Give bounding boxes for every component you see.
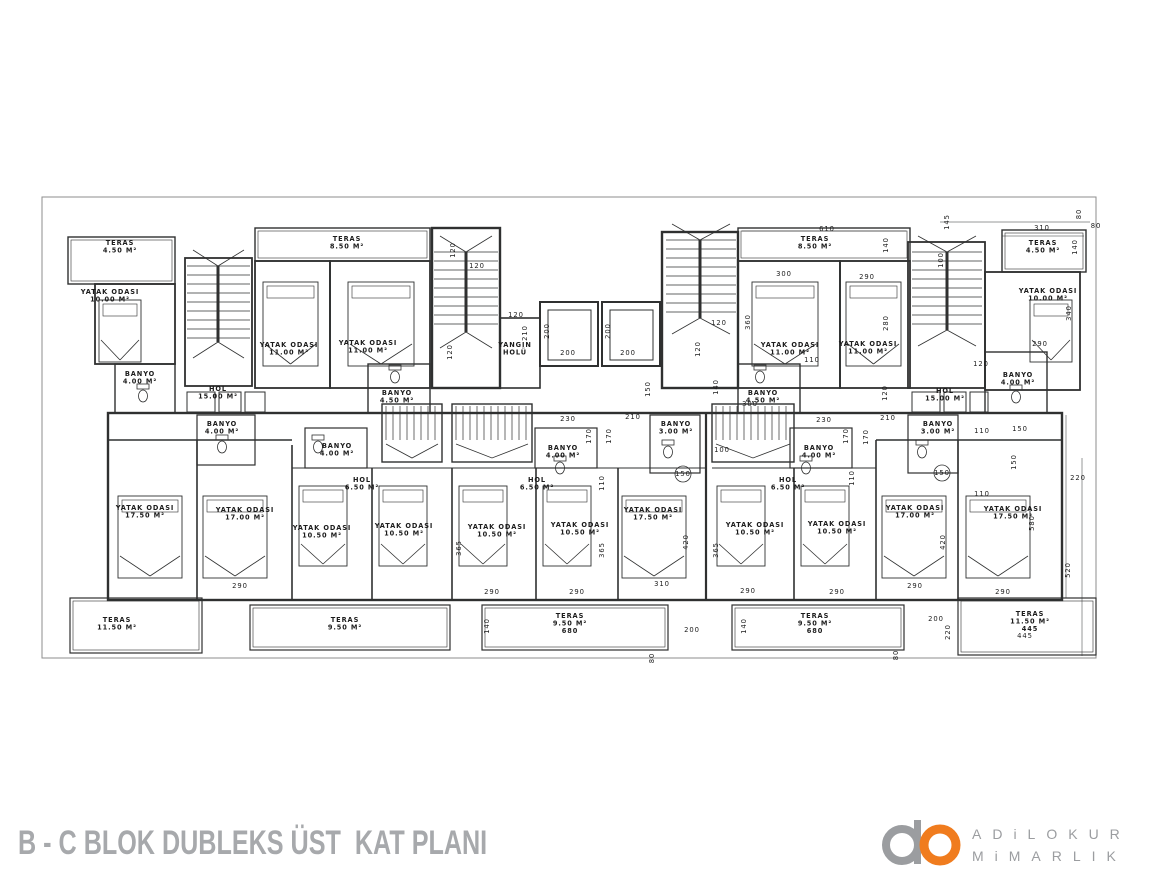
dimension-label: 110 — [974, 427, 990, 435]
room-label: BANYO3.00 M² — [921, 420, 955, 436]
room-label: BANYO3.00 M² — [659, 420, 693, 436]
dimension-label: 610 — [819, 225, 835, 233]
dimension-label: 110 — [848, 470, 856, 486]
dimension-label: 290 — [859, 273, 875, 281]
dimension-label: 360 — [744, 314, 752, 330]
dimension-label: 170 — [842, 428, 850, 444]
drawing-title: B - C BLOK DUBLEKS ÜST KAT PLANI — [18, 824, 487, 863]
dimension-label: 290 — [740, 587, 756, 595]
dimension-label: 120 — [694, 341, 702, 357]
dimension-label: 80 — [648, 653, 656, 663]
dimension-label: 210 — [880, 414, 896, 422]
dimension-label: 310 — [654, 580, 670, 588]
dimension-label: 120 — [446, 344, 454, 360]
room-labels: TERAS4.50 M²YATAK ODASI10.00 M²BANYO4.00… — [80, 235, 1078, 635]
dimension-label: 290 — [995, 588, 1011, 596]
dimension-label: 310 — [1034, 224, 1050, 232]
dimension-label: 170 — [862, 429, 870, 445]
dimension-label: 110 — [598, 475, 606, 491]
room-label: TERAS4.50 M² — [1026, 239, 1060, 255]
dimension-label: 120 — [508, 311, 524, 319]
dimension-label: 150 — [934, 469, 950, 477]
logo-a-icon — [886, 829, 918, 861]
logo-text-line1: ADiLOKUR — [972, 826, 1131, 842]
room-label: BANYO4.00 M² — [1001, 371, 1035, 387]
room-label: HOL15.00 M² — [198, 385, 238, 401]
room-label: YANGINHOLÜ — [497, 341, 532, 357]
dimension-label: 200 — [543, 323, 551, 339]
dimension-label: 230 — [816, 416, 832, 424]
dimension-label: 145 — [943, 214, 951, 230]
room-label: BANYO4.00 M² — [205, 420, 239, 436]
room-label: BANYO4.00 M² — [123, 370, 157, 386]
dimension-label: 120 — [973, 360, 989, 368]
dimension-label: 140 — [483, 618, 491, 634]
dimension-label: 200 — [928, 615, 944, 623]
dimension-label: 200 — [620, 349, 636, 357]
room-label: TERAS8.50 M² — [330, 235, 364, 251]
dimension-label: 110 — [974, 490, 990, 498]
dimension-label: 150 — [1012, 425, 1028, 433]
room-label: BANYO4.00 M² — [546, 444, 580, 460]
dimension-label: 445 — [1017, 632, 1033, 640]
room-label: YATAK ODASI11.00 M² — [259, 341, 319, 357]
dimension-label: 100 — [937, 252, 945, 268]
room-label: HOL6.50 M² — [771, 476, 805, 492]
room-label: YATAK ODASI10.50 M² — [467, 523, 527, 539]
room-label: HOL6.50 M² — [520, 476, 554, 492]
dimension-label: 100 — [714, 446, 730, 454]
dimension-labels: 6101401453108080140340290120100120120120… — [232, 209, 1101, 663]
room-label: YATAK ODASI17.50 M² — [115, 504, 175, 520]
dimension-label: 520 — [1064, 562, 1072, 578]
dimension-label: 280 — [882, 315, 890, 331]
room-label: BANYO4.50 M² — [380, 389, 414, 405]
dimension-label: 120 — [469, 262, 485, 270]
dimension-label: 140 — [740, 618, 748, 634]
room-label: TERAS9.50 M²680 — [553, 612, 587, 635]
dimension-label: 220 — [1070, 474, 1086, 482]
logo-text-line2: MiMARLIK — [972, 848, 1127, 864]
room-label: TERAS11.50 M²445 — [1010, 610, 1050, 633]
logo-o-icon — [924, 829, 956, 861]
room-label: HOL15.00 M² — [925, 387, 965, 403]
room-label: YATAK ODASI17.00 M² — [885, 504, 945, 520]
dimension-label: 220 — [944, 624, 952, 640]
dimension-label: 150 — [1010, 454, 1018, 470]
room-label: YATAK ODASI11.00 M² — [338, 339, 398, 355]
dimension-label: 80 — [1091, 222, 1101, 230]
floor-plan-drawing: 6101401453108080140340290120100120120120… — [0, 0, 1169, 877]
dimension-label: 290 — [232, 582, 248, 590]
dimension-label: 120 — [711, 319, 727, 327]
logo-mark — [872, 812, 972, 874]
room-label: TERAS11.50 M² — [97, 616, 137, 632]
dimension-label: 290 — [907, 582, 923, 590]
dimension-label: 150 — [675, 470, 691, 478]
room-label: TERAS4.50 M² — [103, 239, 137, 255]
dimension-label: 420 — [939, 534, 947, 550]
dimension-label: 420 — [682, 534, 690, 550]
dimension-label: 120 — [881, 385, 889, 401]
dimension-label: 170 — [605, 428, 613, 444]
dimension-label: 230 — [560, 415, 576, 423]
room-label: BANYO4.50 M² — [746, 389, 780, 405]
dimension-label: 365 — [712, 542, 720, 558]
dimension-label: 210 — [521, 325, 529, 341]
dimension-label: 290 — [484, 588, 500, 596]
dimension-label: 290 — [569, 588, 585, 596]
dimension-label: 80 — [892, 650, 900, 660]
dimension-label: 170 — [585, 428, 593, 444]
dimension-label: 80 — [1075, 209, 1083, 219]
dimension-label: 110 — [804, 356, 820, 364]
room-label: YATAK ODASI10.50 M² — [550, 521, 610, 537]
firm-logo: ADiLOKUR MiMARLIK — [872, 812, 1162, 874]
dimension-label: 140 — [1071, 239, 1079, 255]
dimension-label: 290 — [829, 588, 845, 596]
dimension-label: 210 — [625, 413, 641, 421]
room-label: HOL6.50 M² — [345, 476, 379, 492]
room-label: TERAS9.50 M²680 — [798, 612, 832, 635]
dimension-label: 200 — [604, 323, 612, 339]
room-label: BANYO4.00 M² — [802, 444, 836, 460]
room-label: TERAS9.50 M² — [328, 616, 362, 632]
room-label: TERAS8.50 M² — [798, 235, 832, 251]
room-label: YATAK ODASI10.00 M² — [80, 288, 140, 304]
dimension-label: 140 — [882, 237, 890, 253]
dimension-label: 340 — [1065, 305, 1073, 321]
dimension-label: 200 — [684, 626, 700, 634]
room-label: YATAK ODASI11.00 M² — [760, 341, 820, 357]
room-label: BANYO4.00 M² — [320, 442, 354, 458]
dimension-label: 365 — [455, 540, 463, 556]
floor-plan-page: 6101401453108080140340290120100120120120… — [0, 0, 1169, 877]
room-label: YATAK ODASI17.50 M² — [623, 506, 683, 522]
dimension-label: 300 — [776, 270, 792, 278]
dimension-label: 290 — [1032, 340, 1048, 348]
room-label: YATAK ODASI10.50 M² — [725, 521, 785, 537]
dimension-label: 200 — [560, 349, 576, 357]
dimension-label: 150 — [644, 381, 652, 397]
dimension-label: 120 — [449, 242, 457, 258]
room-label: YATAK ODASI17.00 M² — [215, 506, 275, 522]
dimension-label: 140 — [712, 379, 720, 395]
room-label: YATAK ODASI11.00 M² — [838, 340, 898, 356]
dimension-label: 365 — [598, 542, 606, 558]
room-label: YATAK ODASI10.50 M² — [292, 524, 352, 540]
room-label: YATAK ODASI10.50 M² — [807, 520, 867, 536]
room-label: YATAK ODASI10.50 M² — [374, 522, 434, 538]
